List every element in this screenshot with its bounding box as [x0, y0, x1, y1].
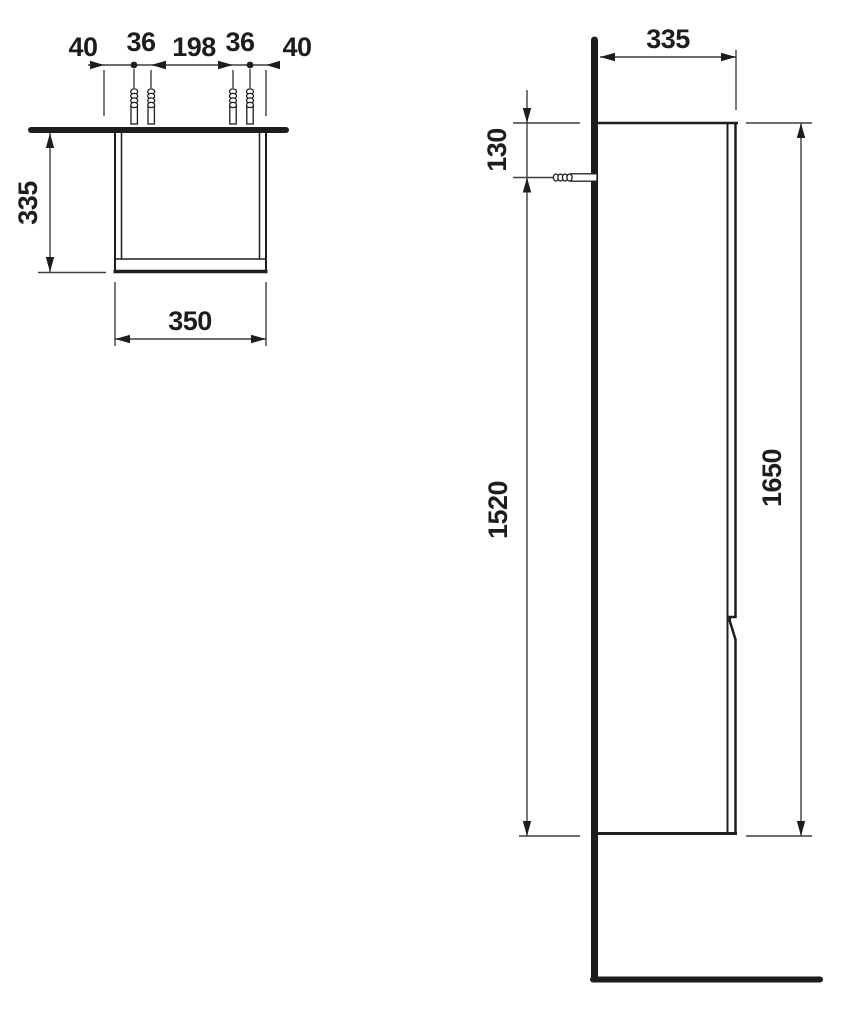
dim-label-198: 198: [172, 32, 216, 62]
dim-arrow: [90, 61, 104, 69]
dim-arrow: [797, 123, 805, 138]
dim-arrow: [46, 133, 54, 148]
dim-point-dot: [131, 62, 138, 69]
dimension-depth-top-view: 335: [13, 133, 106, 273]
wall-plug-icon: [148, 89, 155, 124]
dim-label-335-top-view: 335: [13, 181, 43, 225]
dim-arrow: [151, 61, 166, 69]
wall-plug-icon: [131, 89, 138, 124]
dimension-depth-side-view: 335: [600, 24, 736, 110]
dimension-width-top-view: 350: [115, 282, 266, 346]
dim-arrow: [251, 335, 266, 343]
cabinet-outline-top-view: [114, 133, 268, 273]
technical-drawing: 40 36 198 36 40: [0, 0, 855, 1024]
dim-arrow: [523, 178, 531, 193]
dim-label-40-right: 40: [282, 32, 311, 62]
wall-plugs-top-view: [131, 89, 254, 124]
side-view: 335 130 1520 1650: [482, 24, 820, 980]
wall-plug-icon: [230, 89, 237, 124]
dim-arrow: [523, 821, 531, 836]
dim-label-1650: 1650: [757, 449, 787, 507]
dim-arrow: [266, 61, 280, 69]
dim-label-1520: 1520: [483, 481, 513, 539]
dim-label-130: 130: [482, 128, 512, 172]
cabinet-outline-side-view: [597, 122, 738, 834]
dim-arrow: [721, 53, 736, 61]
dim-arrow: [46, 257, 54, 272]
cabinet-door-profile-with-grip-notch: [730, 123, 736, 834]
dim-label-350: 350: [168, 306, 212, 336]
technical-drawing-page: 40 36 198 36 40: [0, 0, 855, 1024]
dim-label-36-left: 36: [126, 27, 156, 57]
dim-label-335-side-view: 335: [646, 24, 690, 54]
wall-plug-icon: [247, 89, 254, 124]
dim-point-dot: [247, 62, 254, 69]
wall-anchor-icon: [551, 174, 597, 181]
dim-arrow: [523, 108, 531, 123]
dim-arrow: [218, 61, 233, 69]
dimension-height: 1650: [746, 123, 812, 836]
dim-arrow: [797, 821, 805, 836]
dim-label-36-right: 36: [225, 27, 255, 57]
dim-arrow: [600, 53, 615, 61]
dimension-fixing-chain: 130 1520: [482, 90, 580, 836]
top-dimension-chain: 40 36 198 36 40: [68, 27, 311, 116]
dim-arrow: [115, 335, 130, 343]
dim-label-40-left: 40: [68, 32, 97, 62]
top-view: 40 36 198 36 40: [13, 27, 312, 346]
